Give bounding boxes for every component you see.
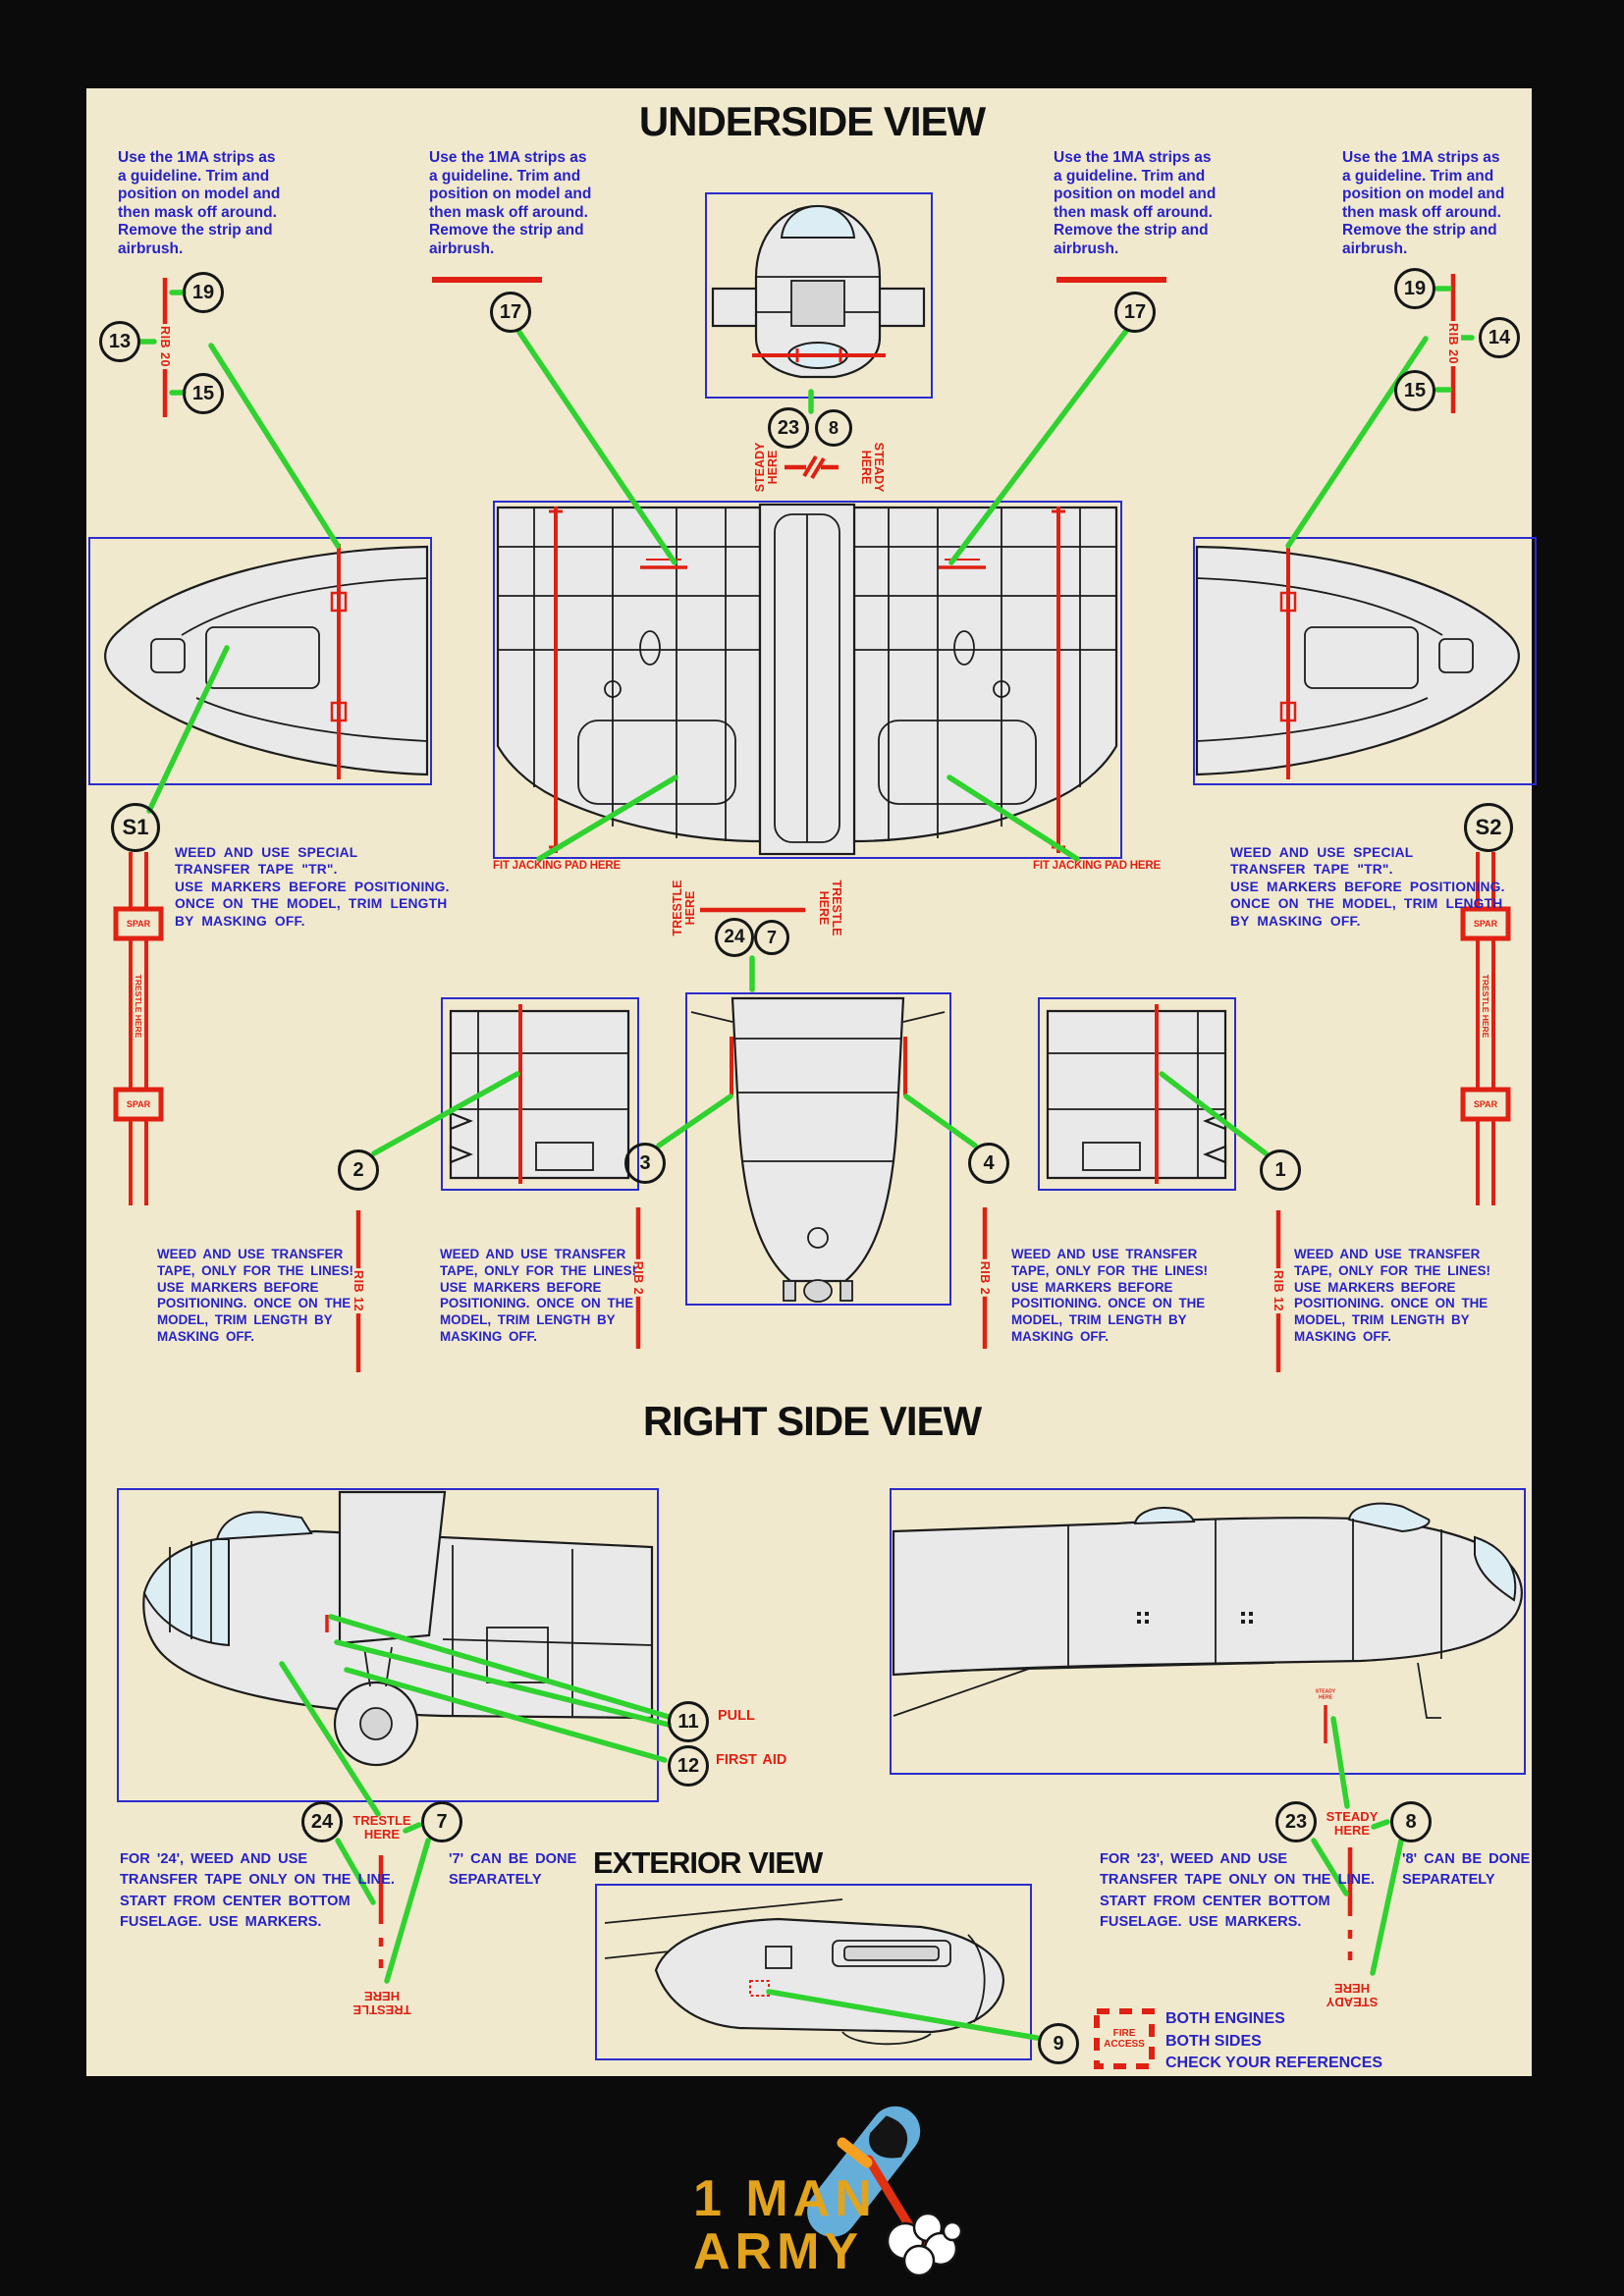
logo-bomb-graphic: 1 MAN ARMY bbox=[677, 2106, 992, 2292]
weed-lines-note-3: WEED AND USE TRANSFER TAPE, ONLY FOR THE… bbox=[1011, 1247, 1208, 1346]
rib-20-label-left: RIB 20 bbox=[157, 324, 173, 369]
trestle-here-mid-left: TRESTLE HERE bbox=[672, 881, 697, 936]
steady-here-top-left: STEADY HERE bbox=[754, 443, 780, 493]
guideline-note-2: Use the 1MA strips as a guideline. Trim … bbox=[429, 149, 591, 259]
legend-check-references: CHECK YOUR REFERENCES bbox=[1165, 2053, 1382, 2075]
weed-special-note-left: WEED AND USE SPECIAL TRANSFER TAPE "TR".… bbox=[175, 844, 450, 930]
marker-19-right: 19 bbox=[1394, 268, 1435, 309]
logo-text-line1: 1 MAN bbox=[693, 2170, 877, 2227]
rib-20-label-right: RIB 20 bbox=[1445, 321, 1461, 366]
trestle-here-bottom-flipped: TRESTLE HERE bbox=[352, 1989, 410, 2016]
marker-15-left-label: 15 bbox=[192, 383, 214, 405]
marker-s2-label: S2 bbox=[1476, 815, 1502, 840]
marker-15-right-label: 15 bbox=[1404, 380, 1426, 402]
marker-24-bottom-label: 24 bbox=[311, 1811, 333, 1834]
fit-jacking-pad-right: FIT JACKING PAD HERE bbox=[1033, 860, 1161, 872]
marker-23-top-label: 23 bbox=[778, 417, 799, 440]
marker-12: 12 bbox=[668, 1745, 709, 1787]
for-23-note: FOR '23', WEED AND USE TRANSFER TAPE ONL… bbox=[1100, 1849, 1375, 1934]
marker-2: 2 bbox=[338, 1149, 379, 1191]
left-wingtip-drawing bbox=[90, 539, 429, 782]
marker-11: 11 bbox=[668, 1701, 709, 1742]
right-side-view-title: RIGHT SIDE VIEW bbox=[0, 1398, 1624, 1445]
marker-19-right-label: 19 bbox=[1404, 278, 1426, 300]
nose-front-view-drawing bbox=[707, 194, 930, 396]
weed-lines-note-1: WEED AND USE TRANSFER TAPE, ONLY FOR THE… bbox=[157, 1247, 353, 1346]
marker-13-label: 13 bbox=[109, 331, 131, 353]
side-view-nose-box bbox=[890, 1488, 1526, 1775]
marker-4-label: 4 bbox=[983, 1152, 994, 1175]
exterior-view-title: EXTERIOR VIEW bbox=[593, 1845, 822, 1881]
nose-front-view-box bbox=[705, 192, 933, 399]
right-aileron-box bbox=[1038, 997, 1236, 1191]
marker-15-right: 15 bbox=[1394, 370, 1435, 411]
marker-4: 4 bbox=[968, 1143, 1009, 1184]
engine-nacelle-drawing bbox=[597, 1886, 1029, 2057]
weed-lines-note-4: WEED AND USE TRANSFER TAPE, ONLY FOR THE… bbox=[1294, 1247, 1490, 1346]
for-24-note: FOR '24', WEED AND USE TRANSFER TAPE ONL… bbox=[120, 1849, 395, 1934]
legend-both-engines: BOTH ENGINES bbox=[1165, 2008, 1382, 2031]
marker-8-top: 8 bbox=[815, 409, 852, 447]
spar-label-1: SPAR bbox=[127, 919, 150, 929]
spar-label-4: SPAR bbox=[1474, 1099, 1497, 1109]
marker-11-label: 11 bbox=[677, 1711, 698, 1734]
side-view-nose-drawing bbox=[892, 1490, 1523, 1772]
marker-s2: S2 bbox=[1464, 803, 1513, 852]
marker-12-label: 12 bbox=[677, 1755, 699, 1778]
trestle-here-bottom: TRESTLE HERE bbox=[352, 1814, 410, 1842]
marker-7-mid: 7 bbox=[754, 920, 789, 955]
marker-17-right: 17 bbox=[1114, 292, 1156, 333]
marker-7-bottom: 7 bbox=[421, 1801, 462, 1842]
first-aid-label: FIRST AID bbox=[716, 1752, 786, 1768]
marker-19-left: 19 bbox=[183, 272, 224, 313]
left-aileron-box bbox=[441, 997, 639, 1191]
right-aileron-drawing bbox=[1040, 999, 1233, 1188]
rib-12-label-right: RIB 12 bbox=[1271, 1268, 1286, 1313]
marker-23-bottom-label: 23 bbox=[1285, 1811, 1307, 1834]
steady-here-bottom: STEADY HERE bbox=[1326, 1810, 1379, 1838]
marker-8-bottom: 8 bbox=[1390, 1801, 1432, 1842]
side-view-front-drawing bbox=[119, 1490, 656, 1799]
right-wingtip-box bbox=[1193, 537, 1537, 785]
rear-fuselage-box bbox=[685, 992, 951, 1306]
marker-1: 1 bbox=[1260, 1149, 1301, 1191]
marker-23-bottom: 23 bbox=[1275, 1801, 1317, 1842]
weed-special-note-right: WEED AND USE SPECIAL TRANSFER TAPE "TR".… bbox=[1230, 844, 1505, 930]
marker-17-left-label: 17 bbox=[500, 301, 521, 324]
marker-s1: S1 bbox=[111, 803, 160, 852]
instruction-sheet: UNDERSIDE VIEW RIGHT SIDE VIEW EXTERIOR … bbox=[0, 0, 1624, 2296]
steady-here-tiny-fuselage: STEADY HERE bbox=[1316, 1690, 1335, 1701]
marker-3-label: 3 bbox=[639, 1152, 650, 1175]
marker-17-right-label: 17 bbox=[1124, 301, 1146, 324]
marker-3: 3 bbox=[624, 1143, 666, 1184]
guideline-note-3: Use the 1MA strips as a guideline. Trim … bbox=[1054, 149, 1216, 259]
pull-label: PULL bbox=[718, 1708, 755, 1724]
center-underside-drawing bbox=[495, 503, 1119, 856]
marker-7-bottom-label: 7 bbox=[436, 1811, 447, 1834]
rib-2-label-right: RIB 2 bbox=[977, 1259, 993, 1297]
marker-13: 13 bbox=[99, 321, 140, 362]
legend-both-sides: BOTH SIDES bbox=[1165, 2031, 1382, 2054]
trestle-here-mid-right: TRESTLE HERE bbox=[817, 881, 842, 936]
guideline-note-1: Use the 1MA strips as a guideline. Trim … bbox=[118, 149, 280, 259]
sep-7-note: '7' CAN BE DONE SEPARATELY bbox=[449, 1849, 576, 1892]
marker-14-label: 14 bbox=[1489, 327, 1510, 349]
right-wingtip-drawing bbox=[1195, 539, 1534, 782]
marker-19-left-label: 19 bbox=[192, 282, 214, 304]
marker-s1-label: S1 bbox=[123, 815, 149, 840]
marker-24-bottom: 24 bbox=[301, 1801, 343, 1842]
logo-text-line2: ARMY bbox=[693, 2223, 863, 2280]
steady-here-bottom-flipped: STEADY HERE bbox=[1326, 1981, 1379, 2008]
marker-15-left: 15 bbox=[183, 373, 224, 414]
underside-view-title: UNDERSIDE VIEW bbox=[0, 98, 1624, 145]
marker-24-mid: 24 bbox=[715, 918, 754, 957]
spar-label-2: SPAR bbox=[127, 1099, 150, 1109]
weed-lines-note-2: WEED AND USE TRANSFER TAPE, ONLY FOR THE… bbox=[440, 1247, 636, 1346]
marker-17-left: 17 bbox=[490, 292, 531, 333]
marker-8-bottom-label: 8 bbox=[1405, 1811, 1416, 1834]
guideline-note-4: Use the 1MA strips as a guideline. Trim … bbox=[1342, 149, 1504, 259]
sep-8-note: '8' CAN BE DONE SEPARATELY bbox=[1402, 1849, 1530, 1892]
steady-here-top-right: STEADY HERE bbox=[859, 443, 885, 493]
left-aileron-drawing bbox=[443, 999, 636, 1188]
fire-access-legend: BOTH ENGINES BOTH SIDES CHECK YOUR REFER… bbox=[1165, 2008, 1382, 2075]
marker-24-mid-label: 24 bbox=[724, 927, 744, 948]
center-underside-box bbox=[493, 501, 1122, 859]
marker-2-label: 2 bbox=[352, 1159, 363, 1182]
trestle-here-spar-right: TRESTLE HERE bbox=[1481, 973, 1490, 1041]
marker-9: 9 bbox=[1038, 2023, 1079, 2064]
one-man-army-logo: 1 MAN ARMY bbox=[677, 2106, 992, 2292]
marker-23-top: 23 bbox=[768, 407, 809, 449]
marker-8-top-label: 8 bbox=[829, 418, 839, 439]
fire-access-label: FIRE ACCESS bbox=[1104, 2028, 1145, 2050]
marker-14: 14 bbox=[1479, 317, 1520, 358]
marker-9-label: 9 bbox=[1053, 2033, 1063, 2056]
fit-jacking-pad-left: FIT JACKING PAD HERE bbox=[493, 860, 621, 872]
marker-1-label: 1 bbox=[1274, 1159, 1285, 1182]
exterior-view-box bbox=[595, 1884, 1032, 2060]
left-wingtip-box bbox=[88, 537, 432, 785]
trestle-here-spar-left: TRESTLE HERE bbox=[134, 973, 143, 1041]
rear-fuselage-drawing bbox=[687, 994, 948, 1303]
side-view-front-box bbox=[117, 1488, 659, 1802]
marker-7-mid-label: 7 bbox=[767, 928, 777, 948]
